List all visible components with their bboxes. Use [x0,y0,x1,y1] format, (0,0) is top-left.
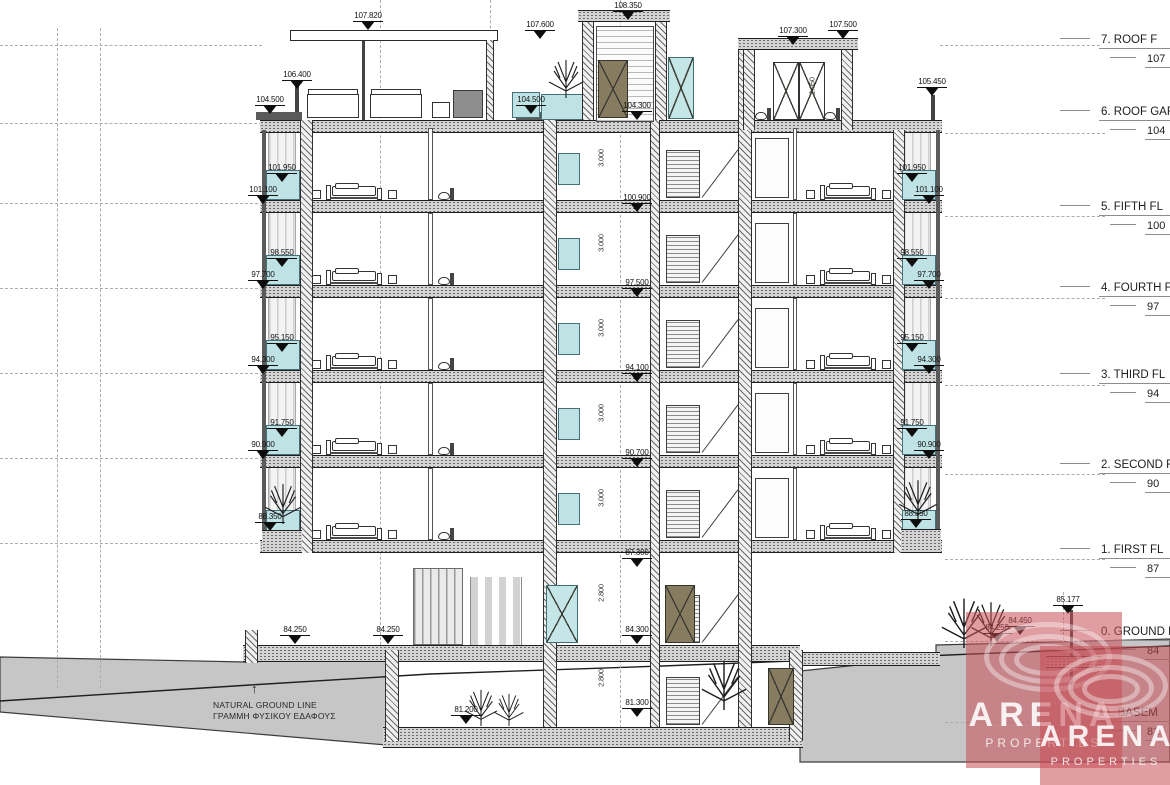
toilet-part [438,192,450,200]
floor-elevation-text: 97 [1145,301,1170,316]
floor-slab [260,285,942,298]
bed-part [829,268,853,274]
floor-label-text: 2. SECOND FL [1099,459,1170,474]
toilet-part [824,112,836,120]
sofa-back [308,89,358,95]
bed-side-table-right [882,530,891,539]
roof-block-elevator-door [773,62,799,120]
bed-side-table-left [312,530,321,539]
partition-wall [428,383,433,455]
balcony-rail-glass-left [266,340,300,370]
partition-wall [793,298,797,370]
bed-side-table-right [882,360,891,369]
stair-flight [666,405,700,453]
bed-part [335,353,359,359]
floor-label: 7. ROOF F [1060,34,1170,49]
roof-block-wall-right [841,50,853,130]
toilet-part [438,362,450,370]
basement-door-brown [768,668,794,725]
floor-elevation-text: 87 [1145,563,1170,578]
floor-elevation: 100 [1110,220,1170,235]
floor-label-text: 5. FIFTH FL [1099,201,1170,216]
dimension-text: 2.800 [597,669,606,687]
leader-line [1060,711,1090,712]
bed-side-table-right [388,530,397,539]
wardrobe [755,478,789,538]
roof-table [432,102,450,118]
leader-line [1110,305,1136,306]
grid-line-horizontal [0,543,258,544]
pergola-post [362,41,365,120]
toilet [755,106,771,120]
bed-part [824,537,872,540]
bed [820,522,876,540]
bed [820,182,876,200]
floor-elevation-text: 100 [1145,220,1170,235]
grid-line-horizontal [945,559,1105,560]
stair-flight [666,490,700,538]
bed-part [824,282,872,285]
floor-label-text: 3. THIRD FL [1099,369,1170,384]
bed-part [335,438,359,444]
leader-line [1060,373,1090,374]
grid-line-horizontal [0,45,262,46]
bed-side-table-left [312,445,321,454]
toilet-part [438,532,450,540]
leader-line [1060,548,1090,549]
shrub-ground-right [968,600,1014,646]
floor-label-text: -1. BASEM [1099,707,1170,722]
core-window [558,153,580,185]
balcony-rail-glass-left [266,255,300,285]
floor-elevation: 90 [1110,478,1170,493]
partition-wall [793,468,797,540]
bed-part [829,183,853,189]
bed-side-table-left [806,360,815,369]
bed-side-table-right [882,275,891,284]
leader-line [1060,110,1090,111]
wall-core-right [650,120,660,727]
roof-sofa [370,94,422,118]
floor-elevation-text: 94 [1145,388,1170,403]
toilet-part [450,188,454,200]
core-window [558,493,580,525]
pergola-slab [290,30,498,41]
dimension-text: 3.000 [597,149,606,167]
toilet-part [438,277,450,285]
partition-wall [428,128,433,200]
floor-elevation-text: 90 [1145,478,1170,493]
bed [326,267,382,285]
ngl-text-gr: ΓΡΑΜΜΗ ΦΥΣΙΚΟΥ ΕΔΑΦΟΥΣ [213,711,336,722]
ground-louver-slats [470,577,522,645]
pergola-support-wall [486,40,494,120]
ground-door-brown [665,585,695,643]
bed-part [330,537,378,540]
bed [326,352,382,370]
grid-line-vertical [57,28,58,688]
sofa-back [371,89,421,95]
wardrobe [755,308,789,368]
floor-elevation-text: 107 [1145,53,1170,68]
bed-part [824,452,872,455]
bed-part [330,197,378,200]
toilet [438,441,454,455]
grid-line-horizontal [945,385,1105,386]
floor-label: 0. GROUND FL [1060,626,1170,641]
floor-label-text: 6. ROOF GAR [1099,106,1170,121]
core-window [558,408,580,440]
balcony-rail-glass-left [266,170,300,200]
toilet-part [450,528,454,540]
bed-part [824,367,872,370]
plant-balcony-right [896,478,940,522]
bed-side-table-right [388,445,397,454]
bed-side-table-left [312,275,321,284]
floor-slab [260,455,942,468]
bed-part [829,523,853,529]
planter-right [901,529,941,553]
grid-line-horizontal [0,123,262,124]
bed-side-table-left [312,360,321,369]
grid-line-horizontal [945,298,1105,299]
floor-label-text: 4. FOURTH FL [1099,282,1170,297]
roof-glass-panel [512,92,540,118]
bed [820,352,876,370]
overrun-roof-slab [578,10,670,22]
toilet [824,106,840,120]
bed-part [335,268,359,274]
floor-label-text: 0. GROUND FL [1099,626,1170,641]
partition-wall [793,383,797,455]
plant-balcony-left [262,482,304,524]
floor-elevation: 97 [1110,301,1170,316]
wardrobe [755,138,789,198]
balcony-rail-glass-right [902,255,936,285]
toilet [438,186,454,200]
leader-line [1060,286,1090,287]
bed-part [335,183,359,189]
stair-flight [666,150,700,198]
floor-elevation-text: 104 [1145,125,1170,140]
toilet-part [836,108,840,120]
wall-retaining-left [245,630,258,663]
leader-line [1110,649,1136,650]
bed-part [335,523,359,529]
stair-flight [666,320,700,368]
toilet [438,271,454,285]
wall-basement-left [385,650,399,741]
ground-entrance-glass-door [546,585,578,643]
bed-side-table-left [806,190,815,199]
grid-line-vertical [100,28,101,688]
bed-part [330,282,378,285]
floor-label: 4. FOURTH FL [1060,282,1170,297]
toilet-part [755,112,767,120]
grid-line-horizontal [0,458,258,459]
toilet-part [450,443,454,455]
bed-side-table-left [312,190,321,199]
roof-sofa [307,94,359,118]
stair-flight [666,677,700,725]
ground-louver-screen [413,568,463,645]
shrub-basement [492,692,526,726]
dimension-text: 2.800 [597,584,606,602]
partition-wall [428,213,433,285]
bed-side-table-right [388,190,397,199]
balcony-rail-glass-right [902,170,936,200]
stair-flight [666,235,700,283]
floor-label: 1. FIRST FL [1060,544,1170,559]
leader-line [1060,630,1090,631]
bed-side-table-right [388,360,397,369]
grid-line-horizontal [0,203,258,204]
plant-roof-planter [546,58,586,98]
bed-side-table-right [882,445,891,454]
retaining-post-right [1070,610,1073,690]
overrun-wall-right [655,22,667,120]
toilet [438,356,454,370]
bed-part [330,367,378,370]
bed-part [330,452,378,455]
bed [820,437,876,455]
bed [326,522,382,540]
ngl-annotation: NATURAL GROUND LINE ΓΡΑΜΜΗ ΦΥΣΙΚΟΥ ΕΔΑΦΟ… [213,700,336,721]
ngl-text-en: NATURAL GROUND LINE [213,700,336,711]
roof-block-slab [738,38,858,50]
floor-label: 3. THIRD FL [1060,369,1170,384]
floor-label: -1. BASEM [1060,707,1170,722]
leader-line [1110,57,1136,58]
floor-elevation: 87 [1110,563,1170,578]
bed-part [824,197,872,200]
balcony-rail-glass-left [266,425,300,455]
toilet-part [450,273,454,285]
grid-line-horizontal [945,133,1105,134]
balcony-rail-glass-right [902,340,936,370]
bed [326,182,382,200]
section-drawing-canvas: 107.820108.350107.600107.300107.500106.4… [0,0,1170,785]
toilet-part [767,108,771,120]
dimension-text: 3.000 [597,234,606,252]
parapet-left [256,112,302,120]
partition-wall [428,468,433,540]
leader-line [1110,224,1136,225]
floor-slab [260,540,942,553]
floor-label: 2. SECOND FL [1060,459,1170,474]
toilet-part [438,447,450,455]
grid-line-horizontal [945,722,1105,723]
tree-basement [698,658,750,710]
partition-wall [793,213,797,285]
grid-line-horizontal [945,216,1105,217]
toilet-part [450,358,454,370]
ngl-arrow: ↑ [251,681,258,696]
leader-line [1110,392,1136,393]
ground-slab-right [795,652,940,666]
floor-label-text: 7. ROOF F [1099,34,1170,49]
partition-wall [793,128,797,200]
retaining-footing-right [1046,656,1102,668]
bed-side-table-left [806,275,815,284]
basement-slab [383,727,803,748]
wardrobe [755,223,789,283]
dimension-text: 3.000 [597,489,606,507]
leader-line [1110,567,1136,568]
bed-side-table-left [806,445,815,454]
floor-label-text: 1. FIRST FL [1099,544,1170,559]
partition-wall [428,298,433,370]
dimension-text: 3.000 [597,404,606,422]
wall-stair-right [738,50,752,727]
dimension-text: 2.950 [808,77,817,95]
bed-side-table-right [388,275,397,284]
planter-left [262,530,302,553]
floor-label: 6. ROOF GAR [1060,106,1170,121]
floor-slab [260,200,942,213]
leader-line [1110,482,1136,483]
bed-side-table-right [882,190,891,199]
bed-part [829,353,853,359]
balcony-rail-glass-right [902,425,936,455]
bed [820,267,876,285]
leader-line [1060,38,1090,39]
core-window [558,323,580,355]
grid-line-horizontal [0,288,258,289]
bed-side-table-left [806,530,815,539]
toilet [438,526,454,540]
leader-line [1110,129,1136,130]
floor-elevation: 107 [1110,53,1170,68]
grid-line-horizontal [945,474,1105,475]
wardrobe [755,393,789,453]
roof-equipment-box [453,90,483,118]
floor-elevation: 81 [1110,726,1170,741]
roof-terrace-glass-door [668,57,694,119]
leader-line [1060,463,1090,464]
floor-elevation: 104 [1110,125,1170,140]
grid-line-horizontal [0,373,258,374]
floor-elevation: 84 [1110,645,1170,660]
core-window [558,238,580,270]
floor-elevation: 94 [1110,388,1170,403]
floor-slab [260,370,942,383]
floor-elevation-text: 84 [1145,645,1170,660]
bed-part [829,438,853,444]
overrun-door-brown [598,60,628,118]
dimension-text: 3.000 [597,319,606,337]
leader-line [1060,205,1090,206]
roof-block-wall-left [743,50,755,130]
leader-line [1110,730,1136,731]
floor-elevation-text: 81 [1145,726,1170,741]
railing-post-right [931,95,935,120]
bed [326,437,382,455]
floor-label: 5. FIFTH FL [1060,201,1170,216]
